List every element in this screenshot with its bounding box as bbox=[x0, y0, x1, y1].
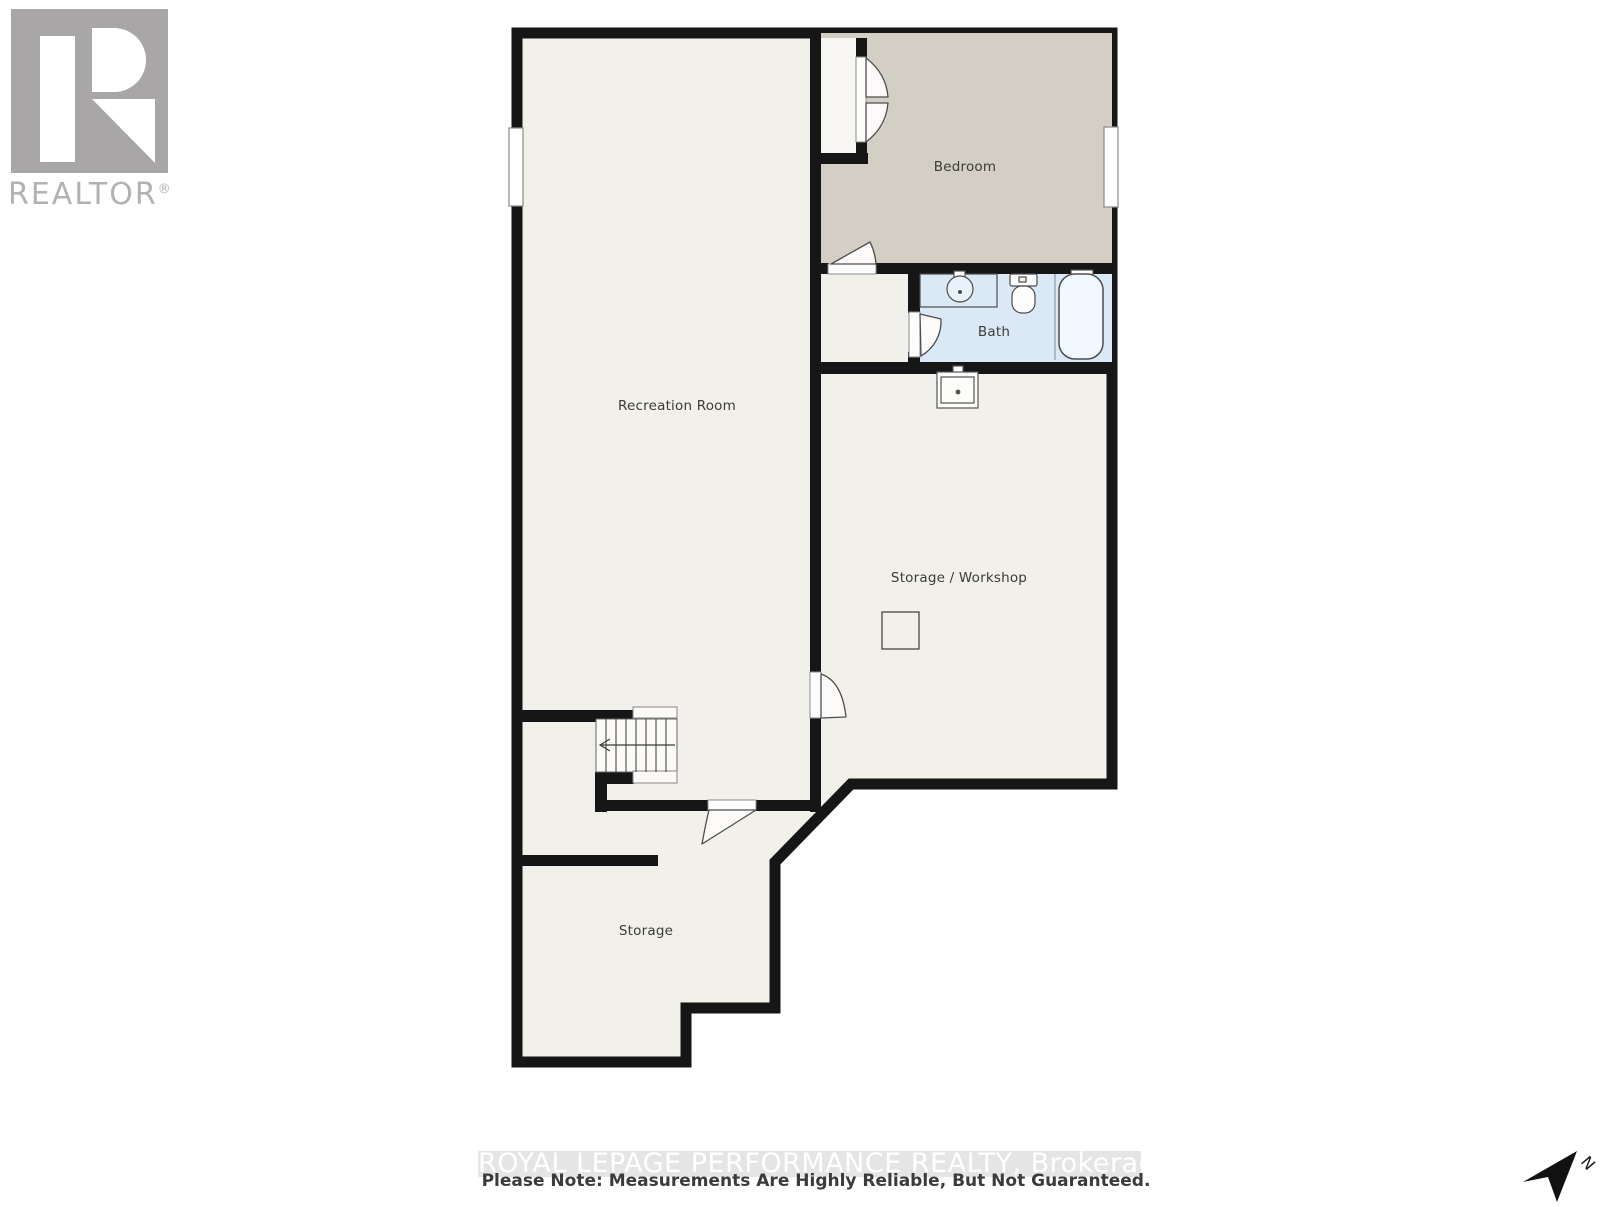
window-right-icon bbox=[1104, 127, 1118, 207]
registered-trademark-symbol: ® bbox=[158, 182, 171, 197]
toilet-icon bbox=[1010, 274, 1037, 313]
sink-vanity-icon bbox=[920, 271, 997, 307]
recreation-room-label: Recreation Room bbox=[618, 398, 736, 414]
bathtub-icon bbox=[1059, 270, 1103, 359]
closet-floor bbox=[820, 38, 857, 153]
realtor-wordmark: REALTOR® bbox=[8, 177, 171, 212]
floor-plan-page: N Recreation Room Bedroom Bath Storage /… bbox=[0, 0, 1600, 1207]
bath-label: Bath bbox=[978, 324, 1010, 340]
floor-plan-drawing: N bbox=[0, 0, 1600, 1207]
bedroom-label: Bedroom bbox=[934, 159, 996, 175]
north-label: N bbox=[1577, 1152, 1599, 1173]
north-arrow-icon: N bbox=[1523, 1151, 1599, 1202]
laundry-sink-icon bbox=[937, 366, 978, 408]
storage-workshop-label: Storage / Workshop bbox=[891, 570, 1027, 586]
realtor-logo-icon bbox=[11, 9, 168, 173]
storage-label: Storage bbox=[619, 923, 673, 939]
window-left-icon bbox=[509, 128, 523, 206]
measurement-disclaimer: Please Note: Measurements Are Highly Rel… bbox=[416, 1171, 1216, 1191]
realtor-wordmark-text: REALTOR bbox=[8, 177, 158, 212]
